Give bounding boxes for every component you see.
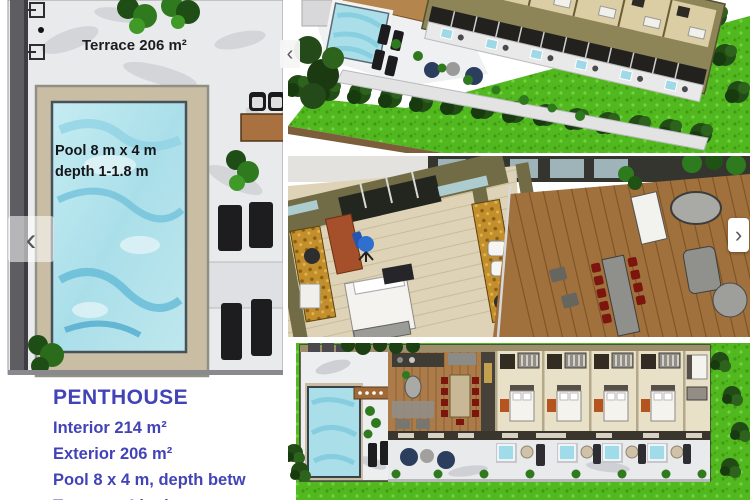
specs-terrace: Terrace +4 bathrooms + <box>53 493 246 500</box>
penthouse-specs: PENTHOUSE Interior 214 m² Exterior 206 m… <box>53 386 246 500</box>
carousel-next-button[interactable]: › <box>728 218 749 252</box>
plan-bedrooms <box>495 351 710 431</box>
bed <box>345 273 416 337</box>
carousel-prev-button[interactable]: ‹ <box>8 216 54 262</box>
end-suite <box>683 351 710 431</box>
plan-living-area <box>388 352 481 431</box>
specs-interior: Interior 214 m² <box>53 415 246 441</box>
specs-pool: Pool 8 x 4 m, depth betw <box>53 467 246 493</box>
plan-pool-terrace <box>302 352 392 480</box>
outdoor-sofa <box>682 246 721 295</box>
siteplan-render-panel <box>288 343 750 500</box>
plan-window-band <box>388 431 710 440</box>
specs-title: PENTHOUSE <box>53 386 246 410</box>
specs-exterior: Exterior 206 m² <box>53 441 246 467</box>
aerial-render-illustration <box>288 0 750 153</box>
rug <box>392 401 434 418</box>
plan-front-terrace <box>388 440 710 482</box>
floorplan-illustration <box>0 0 283 378</box>
oval-table <box>671 192 721 224</box>
aerial-render-panel <box>288 0 750 153</box>
interior-render-panel <box>288 156 750 337</box>
interior-render-illustration <box>288 156 750 337</box>
plan-bottom-edge <box>8 370 283 375</box>
building-plan <box>300 343 710 482</box>
roof-equipment <box>308 343 346 352</box>
carousel-prev-button-aerial[interactable]: ‹ <box>280 40 300 68</box>
pool <box>36 86 208 376</box>
round-table <box>713 283 747 317</box>
listing-gallery-collage: Terrace 206 m² Pool 8 m x 4 m depth 1-1.… <box>0 0 750 500</box>
siteplan-render-illustration <box>288 343 750 500</box>
